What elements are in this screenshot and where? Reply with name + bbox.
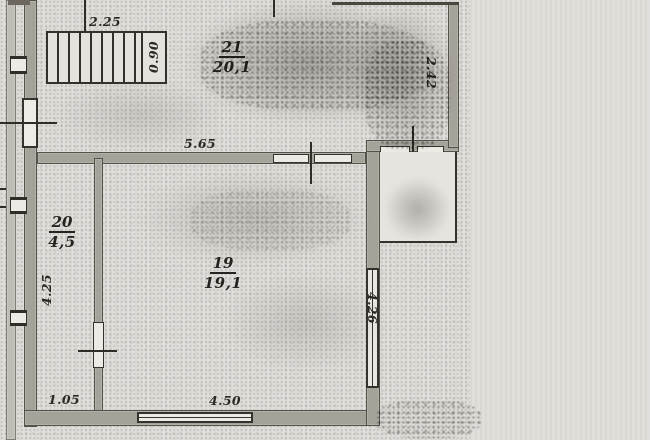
- left-dimension-tick: [0, 122, 57, 124]
- room20-depth-dimension: 4.25: [40, 268, 54, 312]
- top-wall-line: [332, 2, 459, 5]
- stair-run-dimension: 2.25: [75, 15, 135, 29]
- stair-riser-lines: [48, 33, 140, 82]
- room20-width-dimension: 1.05: [42, 393, 86, 407]
- small-room: [380, 152, 457, 243]
- right-lower-wall-dimension: 4.26: [365, 287, 379, 329]
- room-20-area: 4,5: [40, 235, 84, 250]
- right-upper-wall-dimension: 2.42: [424, 51, 438, 95]
- middle-wall-opening-tick: [310, 142, 312, 184]
- right-upper-wall: [448, 2, 459, 148]
- edge-tick: [0, 206, 6, 208]
- room20-door: [93, 322, 104, 368]
- left-wall-pier: [10, 197, 27, 214]
- room-19-number: 19: [210, 256, 237, 274]
- middle-wall-opening: [314, 154, 352, 163]
- scanned-floor-plan-sheet: 2.25 0.90 5.65 2.42 4.25 1.05 4.50 4.26 …: [0, 0, 650, 440]
- stair-width-dimension: 0.90: [147, 37, 161, 77]
- room20-door-tick: [78, 350, 117, 352]
- stair-landing-line: [141, 33, 143, 82]
- room20-room19-divider-wall: [94, 158, 103, 412]
- room-21-number: 21: [219, 40, 246, 58]
- room-19-label: 19 19,1: [196, 256, 250, 291]
- room-20-number: 20: [49, 215, 76, 233]
- bottom-wall-window: [137, 412, 253, 423]
- left-wall-pier: [10, 310, 27, 326]
- room-21-area: 20,1: [200, 60, 264, 75]
- upper-wall-dimension: 5.65: [165, 137, 235, 151]
- left-wall-pier: [10, 56, 27, 74]
- edge-tick: [0, 188, 6, 190]
- top-tick: [273, 0, 275, 17]
- room-20-label: 20 4,5: [40, 215, 84, 250]
- room-21-label: 21 20,1: [200, 40, 264, 75]
- bottom-window-dimension: 4.50: [190, 394, 260, 408]
- middle-wall-opening: [273, 154, 309, 163]
- top-left-wall-mark: [8, 0, 30, 5]
- room-19-area: 19,1: [196, 276, 250, 291]
